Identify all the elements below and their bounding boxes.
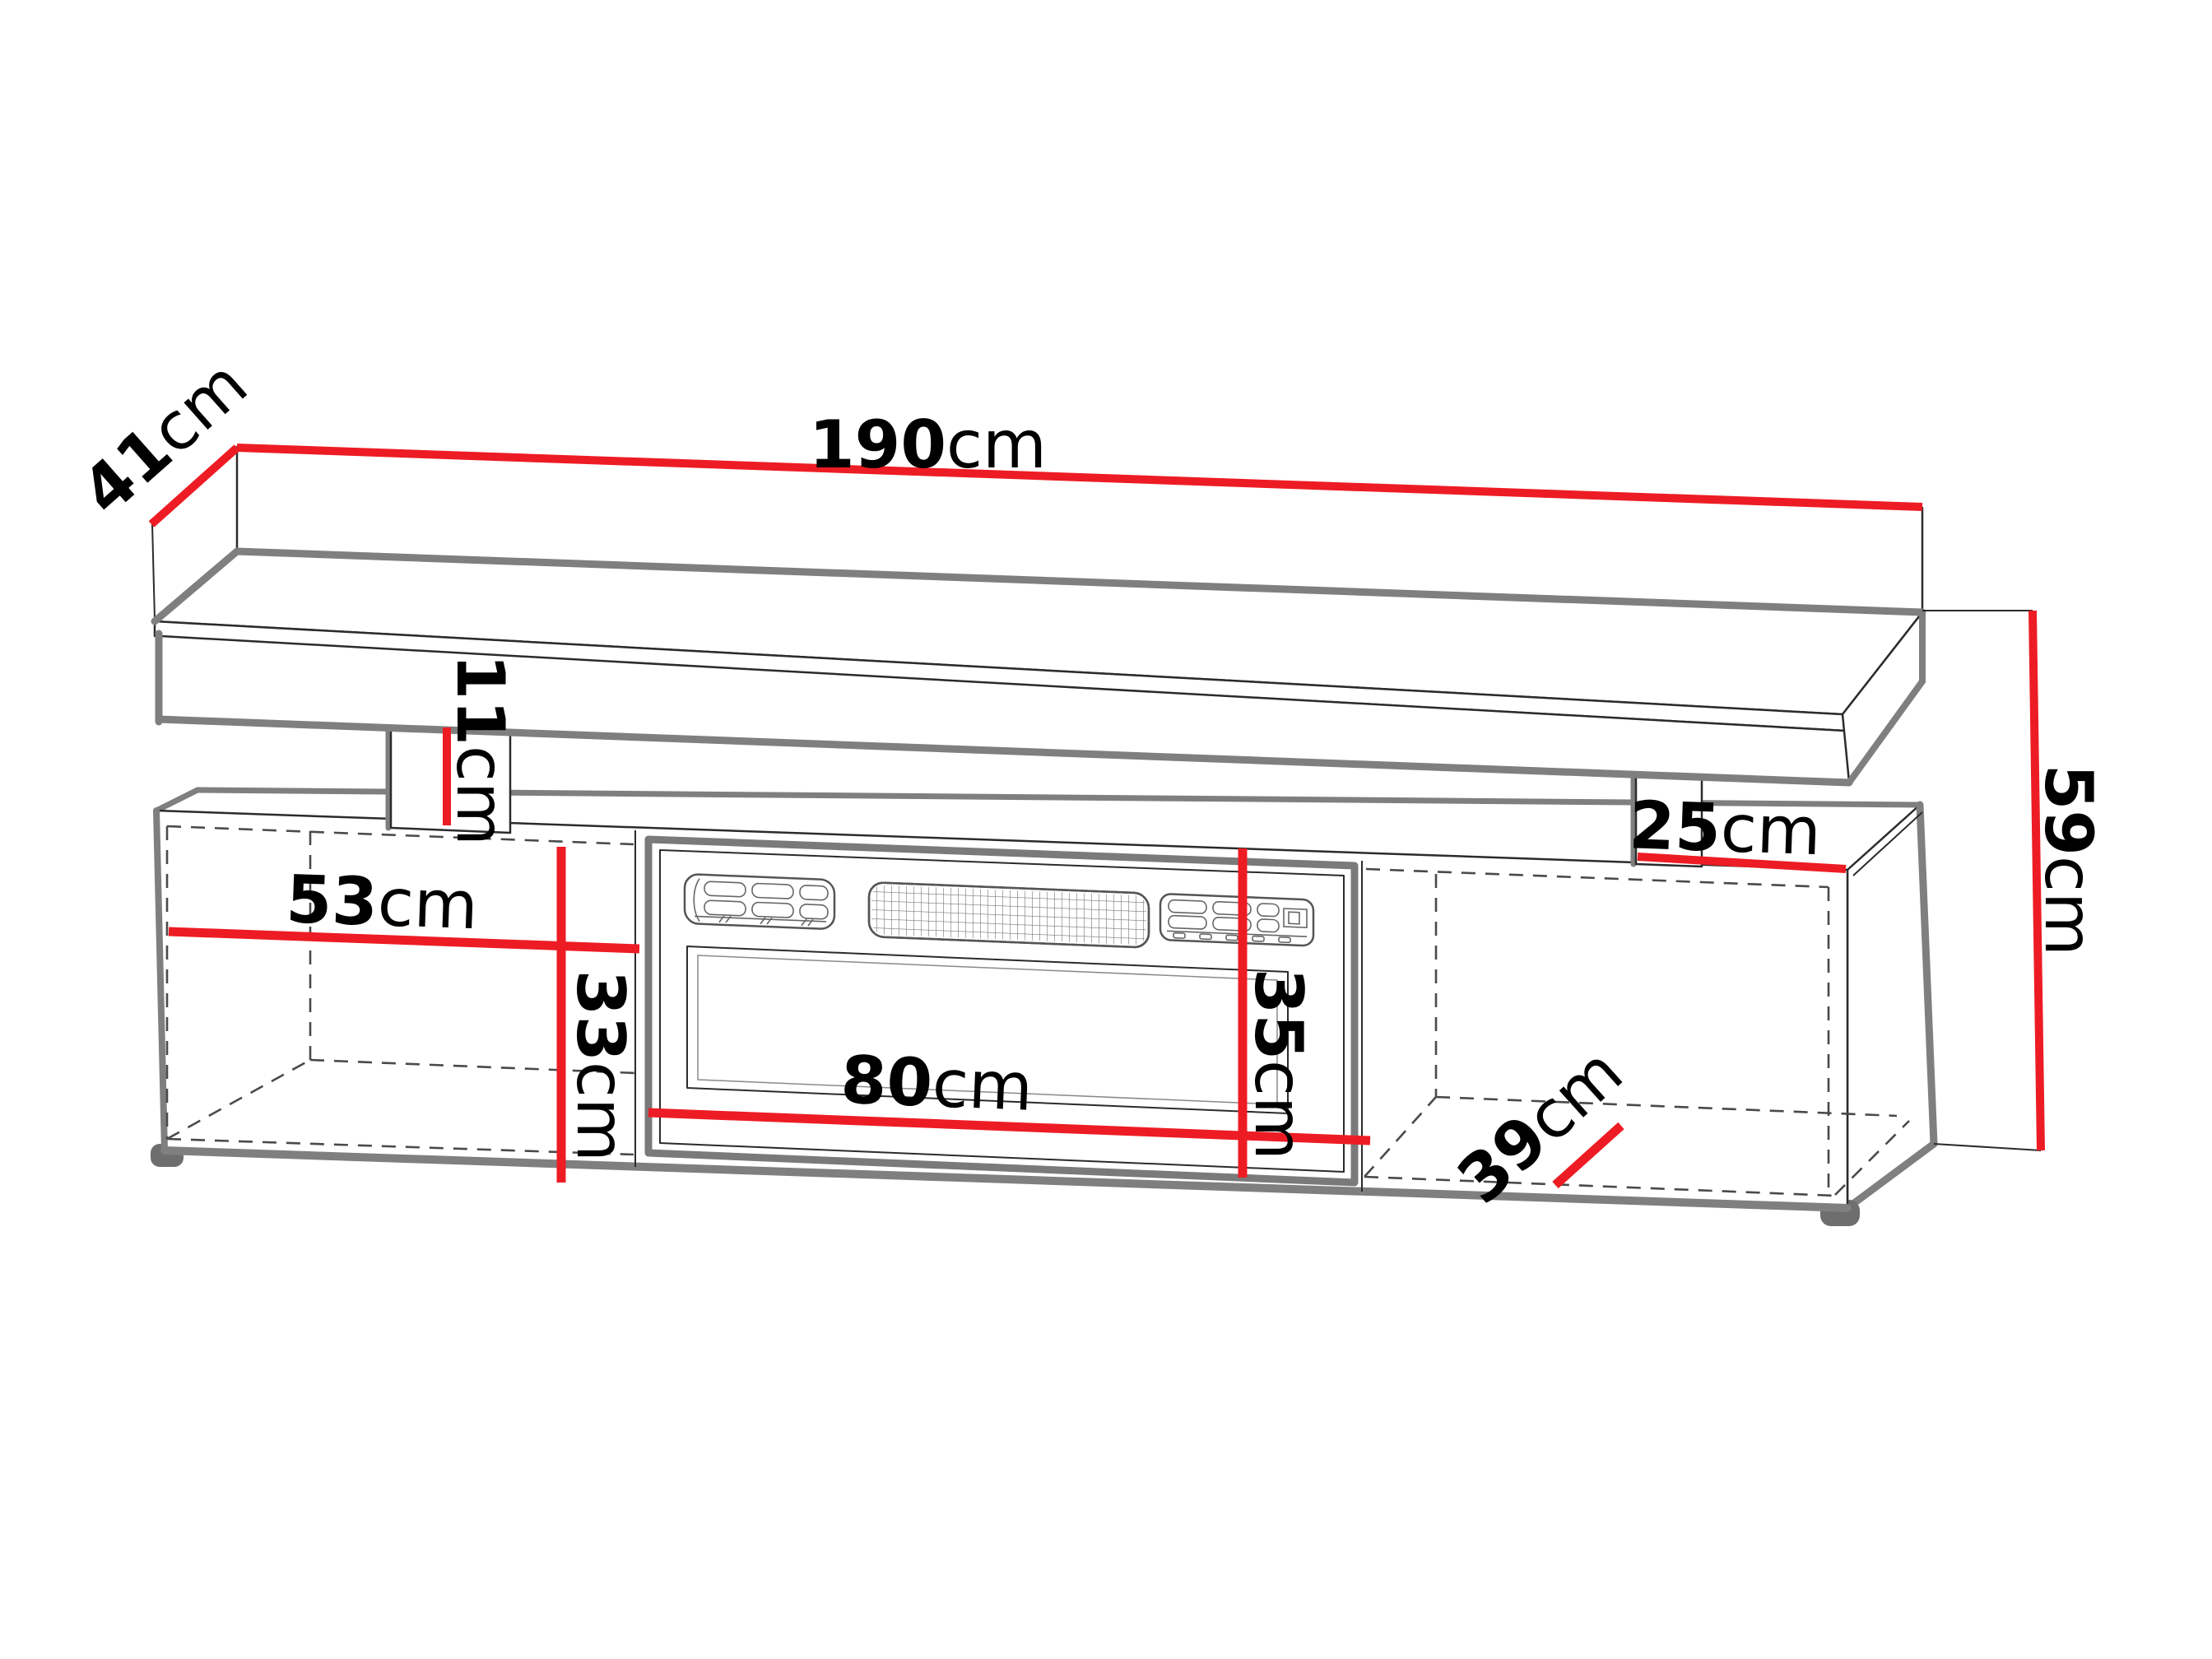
svg-text:33: 33	[562, 970, 639, 1062]
extension-line-bottom	[1934, 1144, 2041, 1150]
fireplace-mesh-grille-icon	[869, 882, 1149, 948]
svg-text:80: 80	[839, 1042, 934, 1122]
svg-text:35: 35	[1240, 969, 1317, 1060]
dimension-label-25cm: 25 cm	[1628, 787, 1822, 870]
svg-text:25: 25	[1628, 787, 1722, 867]
fireplace-control-grille-icon	[1160, 894, 1313, 946]
dimension-label-33cm: 33 cm	[562, 970, 639, 1162]
dimension-label-53cm: 53 cm	[285, 861, 479, 944]
svg-text:cm: cm	[931, 1045, 1034, 1126]
dimension-label-190cm: 190 cm	[809, 407, 1047, 483]
svg-text:cm: cm	[376, 864, 479, 944]
svg-text:11: 11	[442, 654, 518, 746]
dimension-label-59cm: 59 cm	[2030, 764, 2107, 956]
dimension-label-11cm: 11 cm	[442, 654, 518, 846]
shelf-left-side-edge	[152, 524, 155, 620]
svg-text:190: 190	[809, 407, 946, 483]
dimension-label-41cm: 41 cm	[67, 346, 262, 530]
svg-text:cm: cm	[1719, 790, 1822, 870]
svg-text:53: 53	[285, 861, 379, 941]
cabinet-left-depth-edge	[156, 790, 197, 811]
svg-text:cm: cm	[946, 407, 1047, 483]
svg-text:cm: cm	[1240, 1060, 1317, 1160]
tv-stand-dimension-diagram: 190 cm 41 cm 59 cm 11 cm 53 cm 33 cm 80 …	[0, 0, 2212, 1659]
svg-text:cm: cm	[562, 1062, 639, 1162]
svg-text:59: 59	[2030, 764, 2107, 856]
dimension-label-35cm: 35 cm	[1240, 969, 1317, 1160]
svg-text:cm: cm	[2030, 856, 2107, 956]
dimension-label-80cm: 80 cm	[839, 1042, 1034, 1126]
fireplace-left-grille-icon	[685, 874, 834, 929]
svg-text:cm: cm	[442, 746, 518, 846]
